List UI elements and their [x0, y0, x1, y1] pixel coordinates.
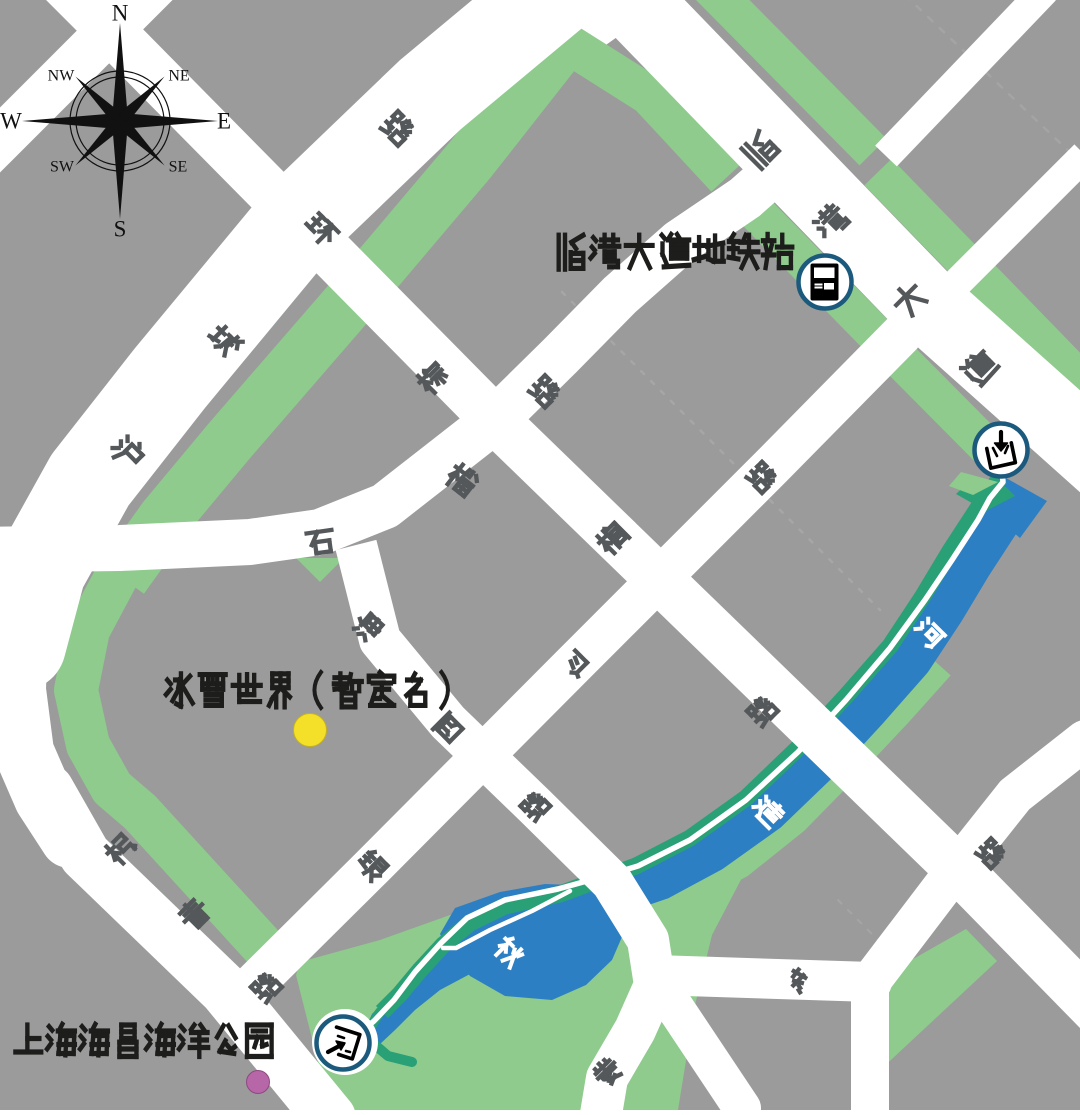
svg-text:W: W: [0, 109, 22, 134]
svg-text:S: S: [114, 217, 127, 242]
svg-text:NE: NE: [168, 68, 189, 85]
svg-text:SW: SW: [50, 159, 75, 176]
svg-text:E: E: [217, 109, 231, 134]
svg-text:NW: NW: [48, 68, 76, 85]
svg-text:N: N: [112, 1, 129, 26]
svg-text:SE: SE: [169, 159, 188, 176]
